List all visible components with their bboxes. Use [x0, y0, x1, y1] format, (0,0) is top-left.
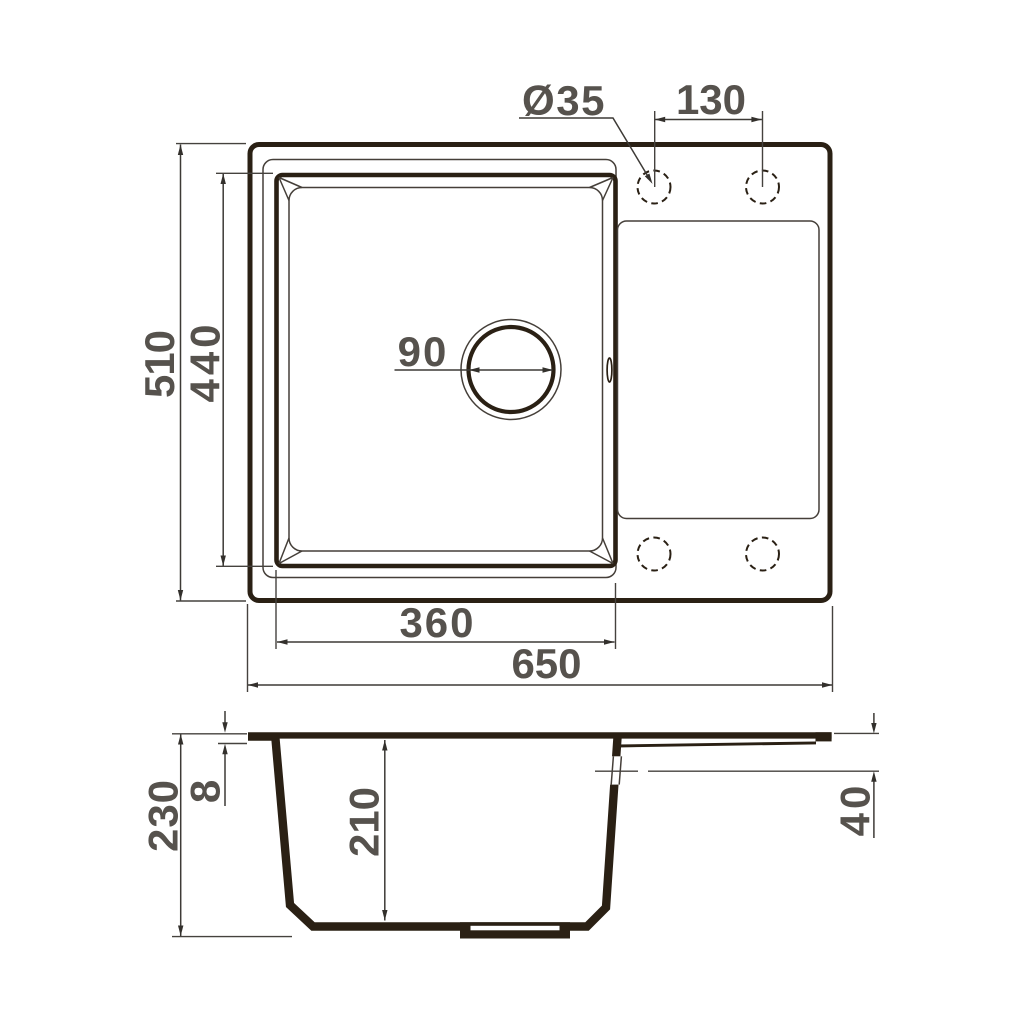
svg-text:650: 650: [511, 640, 581, 687]
svg-text:440: 440: [181, 320, 228, 402]
svg-text:510: 510: [136, 331, 183, 398]
svg-text:230: 230: [139, 779, 186, 852]
svg-text:90: 90: [398, 328, 449, 375]
svg-text:Ø35: Ø35: [522, 77, 606, 124]
svg-text:210: 210: [340, 787, 387, 857]
svg-text:40: 40: [831, 782, 878, 837]
svg-text:130: 130: [676, 76, 746, 123]
svg-text:8: 8: [181, 780, 228, 803]
svg-text:360: 360: [399, 599, 475, 646]
